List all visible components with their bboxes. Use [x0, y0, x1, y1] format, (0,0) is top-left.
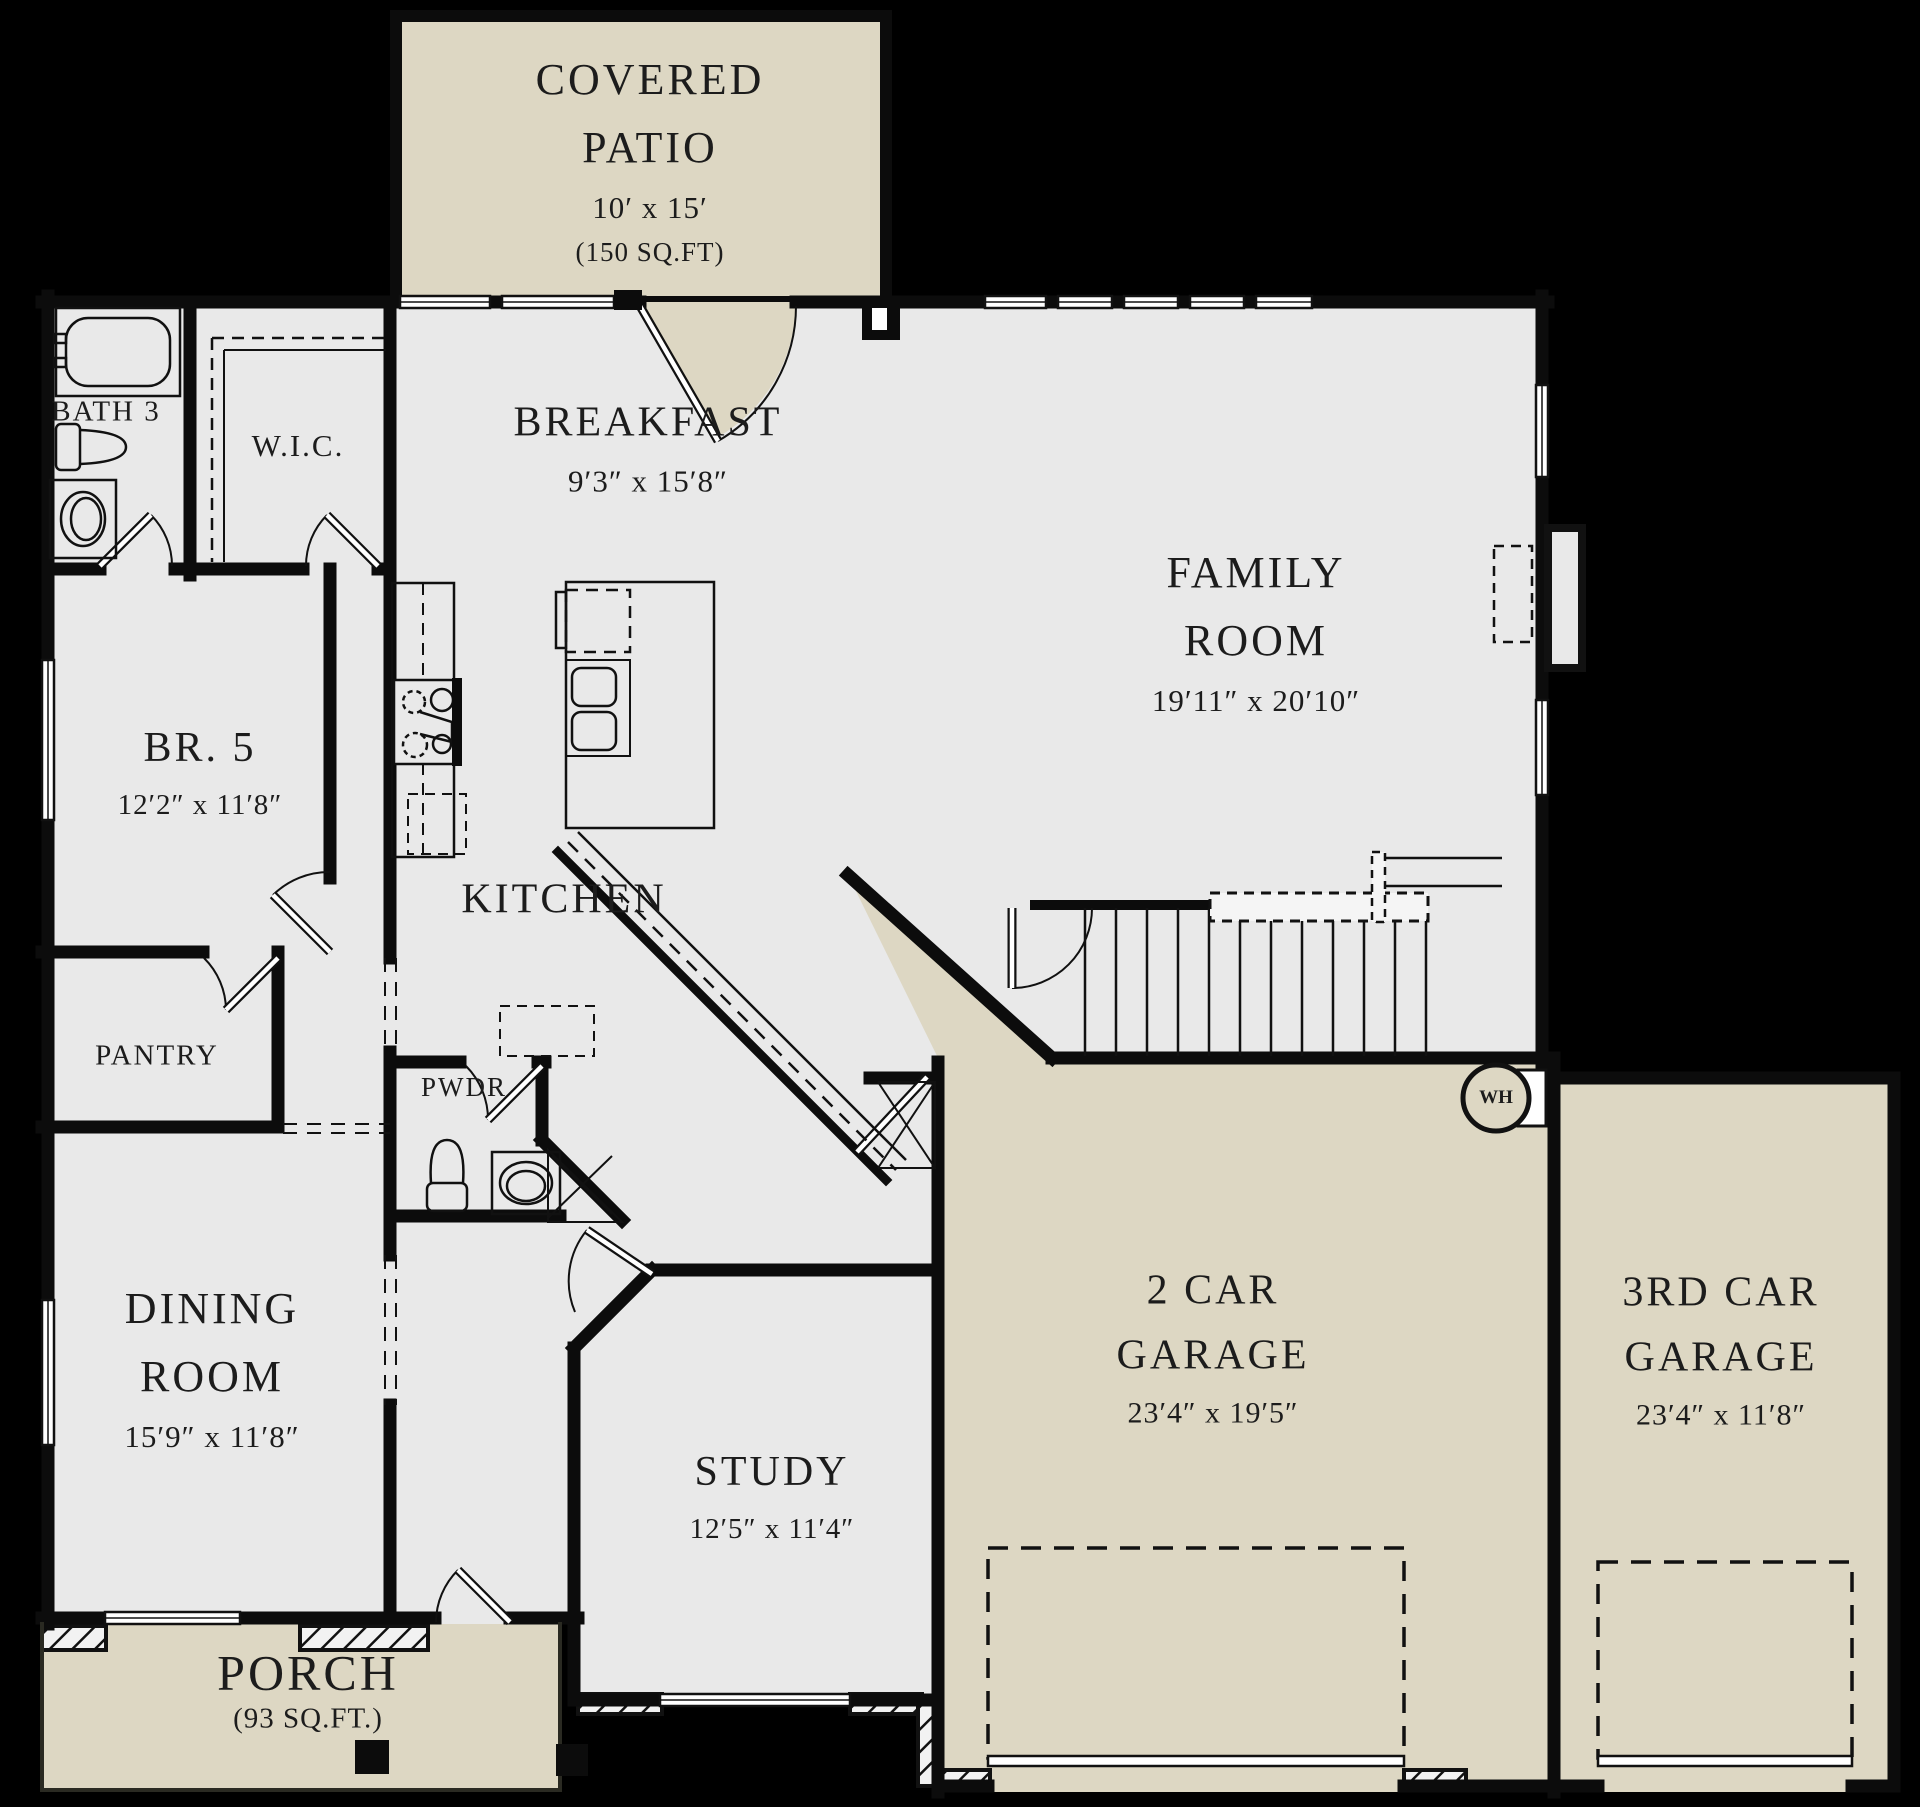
- room-label-bath3: BATH 3: [51, 390, 160, 435]
- garage3-name-line2: GARAGE: [1622, 1326, 1819, 1391]
- garage3-dims: 23′4″ x 11′8″: [1622, 1393, 1819, 1440]
- family-dims: 19′11″ x 20′10″: [1152, 677, 1360, 725]
- room-label-kitchen: KITCHEN: [461, 867, 666, 932]
- breakfast-column-core: [872, 308, 887, 330]
- room-label-2-car-garage: 2 CAR GARAGE 23′4″ x 19′5″: [1117, 1259, 1310, 1438]
- breakfast-name: BREAKFAST: [514, 390, 783, 455]
- breakfast-dims: 9′3″ x 15′8″: [514, 458, 783, 506]
- dining-name-line2: ROOM: [124, 1343, 299, 1411]
- patio-name-line1: COVERED: [536, 46, 765, 114]
- garage2-name-line2: GARAGE: [1117, 1324, 1310, 1389]
- garage3-door-panel: [1598, 1756, 1852, 1766]
- stove: [394, 678, 462, 766]
- room-label-wic: W.I.C.: [252, 422, 345, 470]
- study-dims: 12′5″ x 11′4″: [690, 1507, 855, 1552]
- room-label-pantry: PANTRY: [95, 1034, 219, 1079]
- stair-post: [1372, 852, 1385, 922]
- range-hood-wall: [452, 678, 462, 766]
- room-label-covered-patio: COVERED PATIO 10′ x 15′ (150 SQ.FT): [536, 46, 765, 274]
- room-label-porch: PORCH (93 SQ.FT.): [217, 1645, 399, 1736]
- family-name-line1: FAMILY: [1152, 539, 1360, 607]
- pantry-name: PANTRY: [95, 1034, 219, 1079]
- room-label-br5: BR. 5 12′2″ x 11′8″: [118, 716, 283, 828]
- br5-name: BR. 5: [118, 716, 283, 781]
- room-label-family-room: FAMILY ROOM 19′11″ x 20′10″: [1152, 539, 1360, 725]
- br5-dims: 12′2″ x 11′8″: [118, 783, 283, 828]
- patio-wall-stub: [614, 290, 642, 310]
- stair-railing: [1210, 893, 1428, 921]
- floorplan-svg: [0, 0, 1920, 1807]
- room-label-pwdr: PWDR: [421, 1067, 507, 1109]
- patio-area: (150 SQ.FT): [536, 232, 765, 274]
- floor-fills: [42, 16, 1894, 1792]
- room-label-dining-room: DINING ROOM 15′9″ x 11′8″: [124, 1275, 299, 1461]
- water-heater-label: WH: [1479, 1087, 1513, 1109]
- floorplan-page: COVERED PATIO 10′ x 15′ (150 SQ.FT) BREA…: [0, 0, 1920, 1807]
- porch-area: (93 SQ.FT.): [217, 1702, 399, 1735]
- porch-column-1: [355, 1740, 389, 1774]
- garage2-door-panel: [988, 1756, 1404, 1766]
- dining-name-line1: DINING: [124, 1275, 299, 1343]
- kitchen-name: KITCHEN: [461, 867, 666, 932]
- wic-name: W.I.C.: [252, 422, 345, 470]
- room-label-3rd-car-garage: 3RD CAR GARAGE 23′4″ x 11′8″: [1622, 1261, 1819, 1440]
- patio-dims: 10′ x 15′: [536, 184, 765, 232]
- garage3-name-line1: 3RD CAR: [1622, 1261, 1819, 1326]
- bath3-name: BATH 3: [51, 390, 160, 435]
- study-hall-floor-area: [390, 1064, 940, 1706]
- study-name: STUDY: [690, 1440, 855, 1505]
- dining-dims: 15′9″ x 11′8″: [124, 1413, 299, 1461]
- room-label-breakfast: BREAKFAST 9′3″ x 15′8″: [514, 390, 783, 505]
- porch-column-2: [556, 1744, 588, 1776]
- family-name-line2: ROOM: [1152, 607, 1360, 675]
- garage2-name-line1: 2 CAR: [1117, 1259, 1310, 1324]
- room-label-study: STUDY 12′5″ x 11′4″: [690, 1440, 855, 1552]
- garage2-dims: 23′4″ x 19′5″: [1117, 1391, 1310, 1438]
- porch-name: PORCH: [217, 1645, 399, 1703]
- pwdr-name: PWDR: [421, 1067, 507, 1109]
- patio-name-line2: PATIO: [536, 114, 765, 182]
